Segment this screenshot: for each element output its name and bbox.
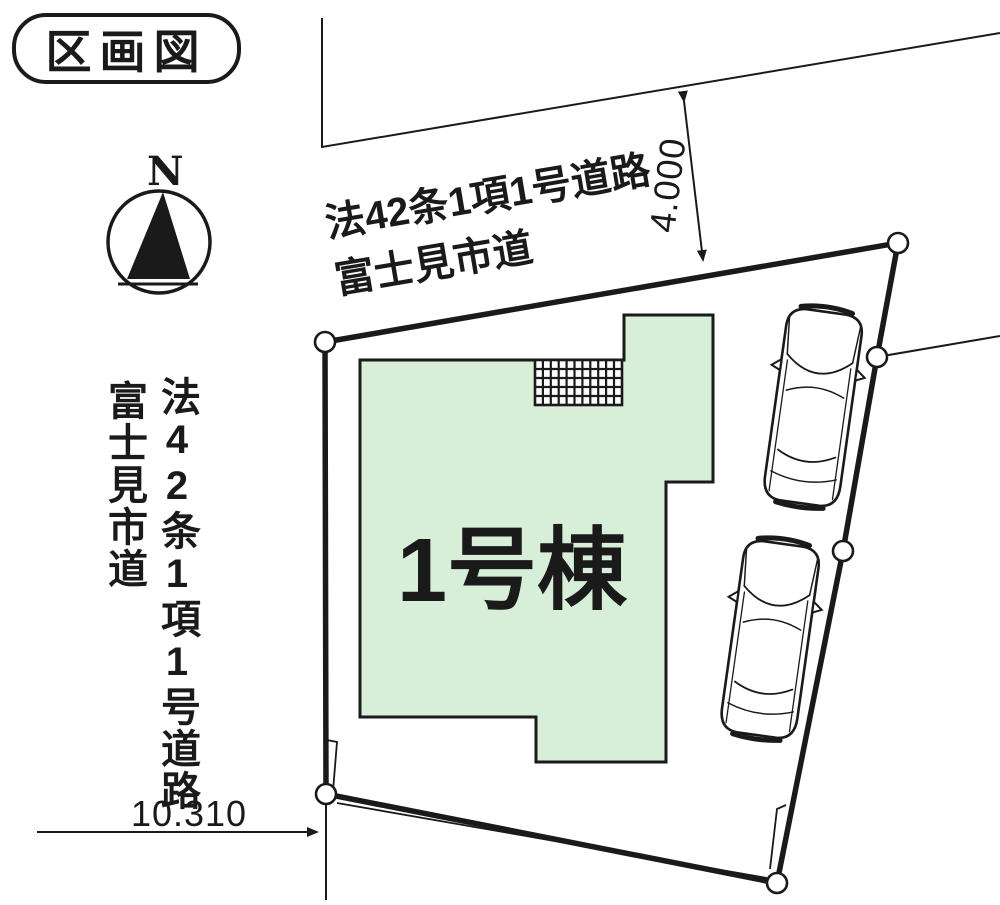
hatch-grid (535, 360, 622, 405)
corner-marker (867, 347, 887, 367)
corner-marker (767, 873, 787, 893)
frontage-dimension: 10.310 (118, 793, 260, 835)
left-road-label-line2: 富士見市道 (102, 380, 146, 590)
page-title-box: 区画図 (12, 13, 241, 84)
corner-marker (833, 541, 853, 561)
wall-line-south (337, 803, 767, 878)
left-road-label-line1: 法42条1項1号道路 (155, 376, 199, 812)
compass-north-label: N (147, 148, 184, 195)
corner-marker (888, 233, 908, 253)
site-plan-drawing (0, 0, 1000, 905)
corner-marker (316, 784, 336, 804)
page-title: 区画図 (46, 16, 208, 82)
corner-marker (315, 332, 335, 352)
plot-plan-page: 区画図 N 法42条1項1号道路 富士見市道 法42条1項1号道路 富士見市道 … (0, 0, 1000, 905)
building-label: 1号棟 (397, 497, 627, 627)
north-arrow-icon (108, 191, 210, 293)
neighbour-boundary-line (877, 336, 1000, 357)
